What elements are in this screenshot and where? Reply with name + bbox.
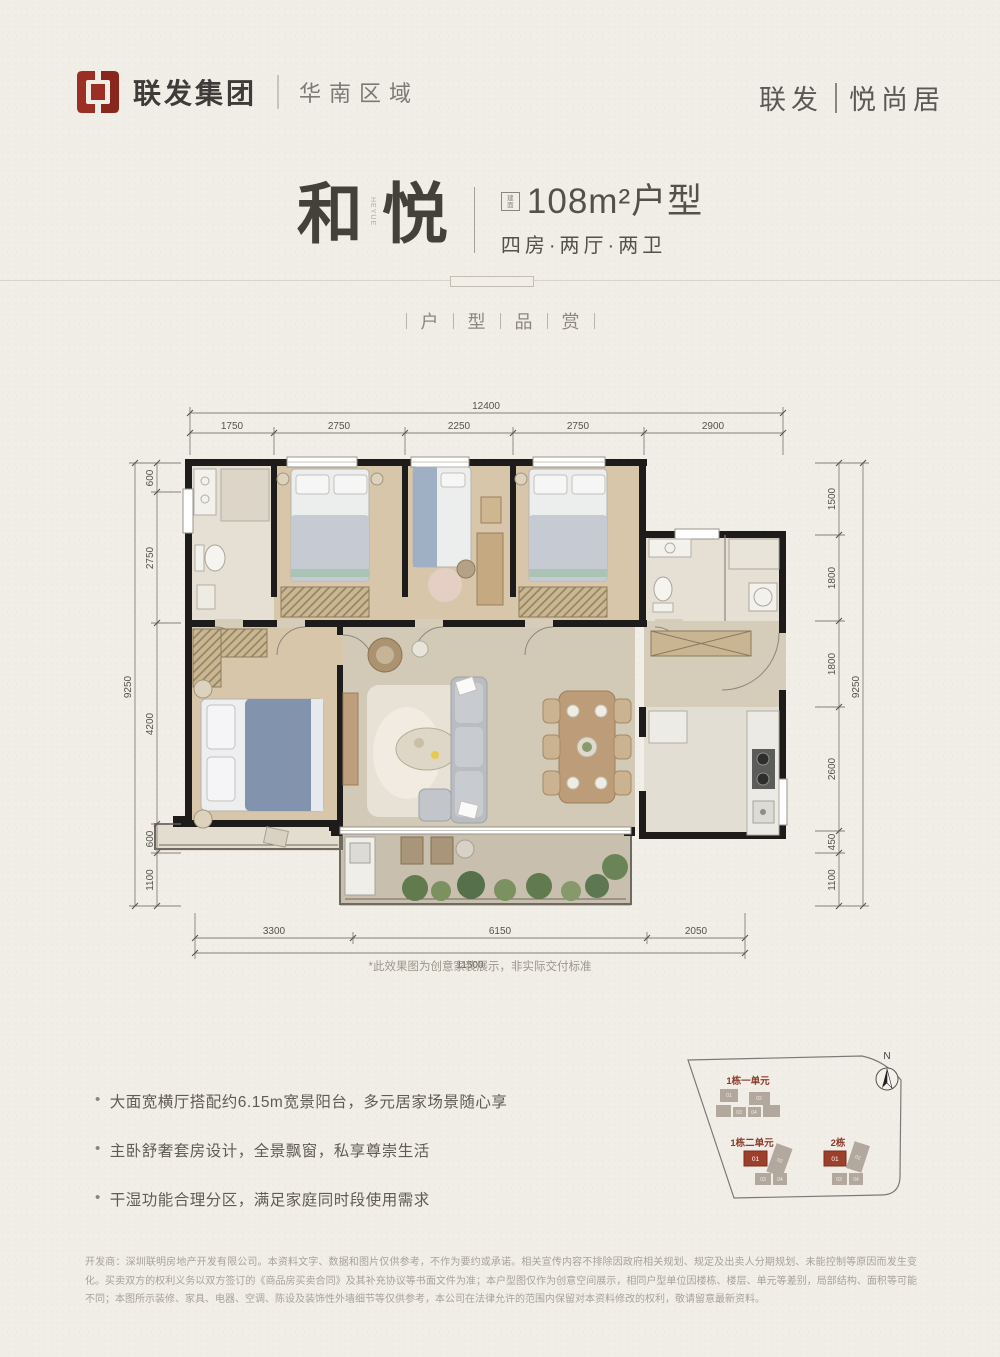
bullet-icon: • xyxy=(95,1188,101,1208)
cluster-label: 2栋 xyxy=(831,1137,846,1149)
cluster-label: 1栋二单元 xyxy=(730,1137,774,1149)
svg-text:N: N xyxy=(883,1051,890,1062)
svg-text:1500: 1500 xyxy=(827,487,838,510)
legal-disclaimer: 开发商：深圳联明房地产开发有限公司。本资料文字、数据和图片仅供参考，不作为要约或… xyxy=(85,1254,917,1310)
floor-plan: 12400 1750 2750 2250 2750 2900 9250 600 … xyxy=(115,393,885,993)
svg-text:03: 03 xyxy=(760,1177,766,1183)
site-boundary xyxy=(688,1056,901,1198)
svg-text:1800: 1800 xyxy=(827,652,838,675)
svg-text:2750: 2750 xyxy=(328,421,351,432)
bullet-icon: • xyxy=(95,1139,101,1159)
area-badge: 建 面 xyxy=(501,192,520,211)
svg-text:450: 450 xyxy=(827,833,838,850)
svg-text:2250: 2250 xyxy=(448,421,471,432)
svg-text:01: 01 xyxy=(752,1156,760,1163)
building-cluster-1: 1栋一单元 01 02 03 04 xyxy=(716,1075,780,1117)
unit-area: 108m²户型 xyxy=(527,183,703,222)
svg-text:1100: 1100 xyxy=(827,869,838,891)
svg-text:2050: 2050 xyxy=(685,926,708,937)
svg-text:2750: 2750 xyxy=(145,546,156,569)
header-divider xyxy=(277,75,279,109)
svg-text:9250: 9250 xyxy=(123,675,134,698)
svg-text:6150: 6150 xyxy=(489,926,512,937)
svg-text:01: 01 xyxy=(831,1156,839,1163)
svg-text:3300: 3300 xyxy=(263,926,286,937)
project-title-left: 联发 xyxy=(759,78,823,117)
lianfa-logo-icon xyxy=(75,70,121,114)
svg-text:1100: 1100 xyxy=(145,869,156,891)
svg-text:1750: 1750 xyxy=(221,421,244,432)
site-map: N 1栋一单元 01 02 03 04 1栋二单元 01 02 03 04 xyxy=(672,1046,917,1221)
bedroom-2 xyxy=(277,469,383,617)
brand-name: 联发集团 xyxy=(133,72,257,112)
project-title-divider xyxy=(835,83,837,113)
svg-text:600: 600 xyxy=(145,469,156,486)
dining-area xyxy=(543,691,631,803)
header-brand: 联发集团 华南区域 xyxy=(75,70,419,114)
bedroom-4 xyxy=(515,469,607,617)
building-cluster-3: 2栋 01 02 03 04 xyxy=(824,1137,870,1185)
svg-text:2900: 2900 xyxy=(702,421,725,432)
project-title: 联发 悦尚居 xyxy=(759,78,945,117)
title-rule-ornament xyxy=(450,276,534,287)
svg-text:9250: 9250 xyxy=(851,675,862,698)
svg-text:4200: 4200 xyxy=(145,712,156,735)
feature-item: • 大面宽横厅搭配约6.15m宽景阳台，多元居家场景随心享 xyxy=(95,1090,655,1112)
building-cluster-2: 1栋二单元 01 02 03 04 xyxy=(730,1137,792,1185)
section-subtitle: 户 型 品 赏 xyxy=(0,308,1000,334)
svg-text:02: 02 xyxy=(756,1096,762,1102)
feature-item: • 干湿功能合理分区，满足家庭同时段使用需求 xyxy=(95,1188,655,1210)
svg-text:03: 03 xyxy=(836,1177,842,1183)
svg-text:600: 600 xyxy=(145,830,156,847)
plan-name-pinyin: HEYUE xyxy=(369,197,376,249)
svg-text:2750: 2750 xyxy=(567,421,590,432)
brand-region: 华南区域 xyxy=(299,76,419,108)
svg-text:2600: 2600 xyxy=(827,757,838,780)
plan-name-char-left: 和 xyxy=(297,183,363,249)
title-divider xyxy=(474,187,475,253)
svg-text:03: 03 xyxy=(736,1110,742,1116)
project-title-right: 悦尚居 xyxy=(849,78,945,117)
svg-text:12400: 12400 xyxy=(472,401,500,412)
plan-name-char-right: 悦 xyxy=(382,183,448,249)
feature-list: • 大面宽横厅搭配约6.15m宽景阳台，多元居家场景随心享 • 主卧舒奢套房设计… xyxy=(95,1090,655,1237)
svg-text:04: 04 xyxy=(853,1177,859,1183)
svg-text:04: 04 xyxy=(751,1110,757,1116)
unit-layout: 四房·两厅·两卫 xyxy=(501,229,703,258)
plan-title-block: 和 HEYUE 悦 建 面 108m²户型 四房·两厅·两卫 xyxy=(0,183,1000,258)
feature-item: • 主卧舒奢套房设计，全景飘窗，私享尊崇生活 xyxy=(95,1139,655,1161)
svg-text:01: 01 xyxy=(726,1093,732,1099)
svg-text:04: 04 xyxy=(777,1177,783,1183)
plan-disclaimer-note: *此效果图为创意家装展示，非实际交付标准 xyxy=(0,958,960,974)
north-compass-icon: N xyxy=(876,1051,898,1090)
cluster-label: 1栋一单元 xyxy=(726,1075,770,1087)
bullet-icon: • xyxy=(95,1090,101,1110)
svg-text:1800: 1800 xyxy=(827,566,838,589)
